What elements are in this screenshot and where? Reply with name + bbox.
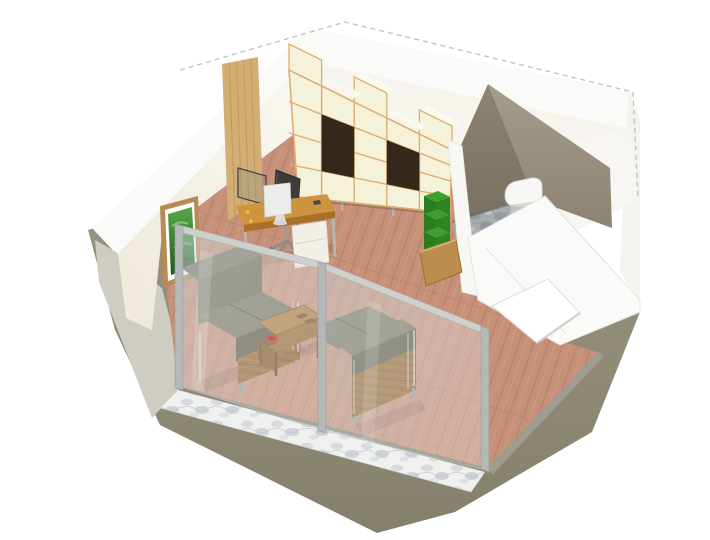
bookshelf-leg bbox=[392, 206, 394, 216]
glass-post bbox=[318, 262, 326, 433]
glass-post bbox=[175, 224, 183, 390]
desk-knob bbox=[249, 219, 253, 223]
scene-svg bbox=[0, 0, 710, 540]
bookshelf-leg bbox=[341, 201, 343, 211]
desk-knob bbox=[246, 210, 250, 214]
glass-post bbox=[481, 326, 489, 472]
monitor-base bbox=[273, 221, 287, 226]
monitor-back bbox=[264, 183, 291, 217]
floorplan-render bbox=[0, 0, 710, 540]
